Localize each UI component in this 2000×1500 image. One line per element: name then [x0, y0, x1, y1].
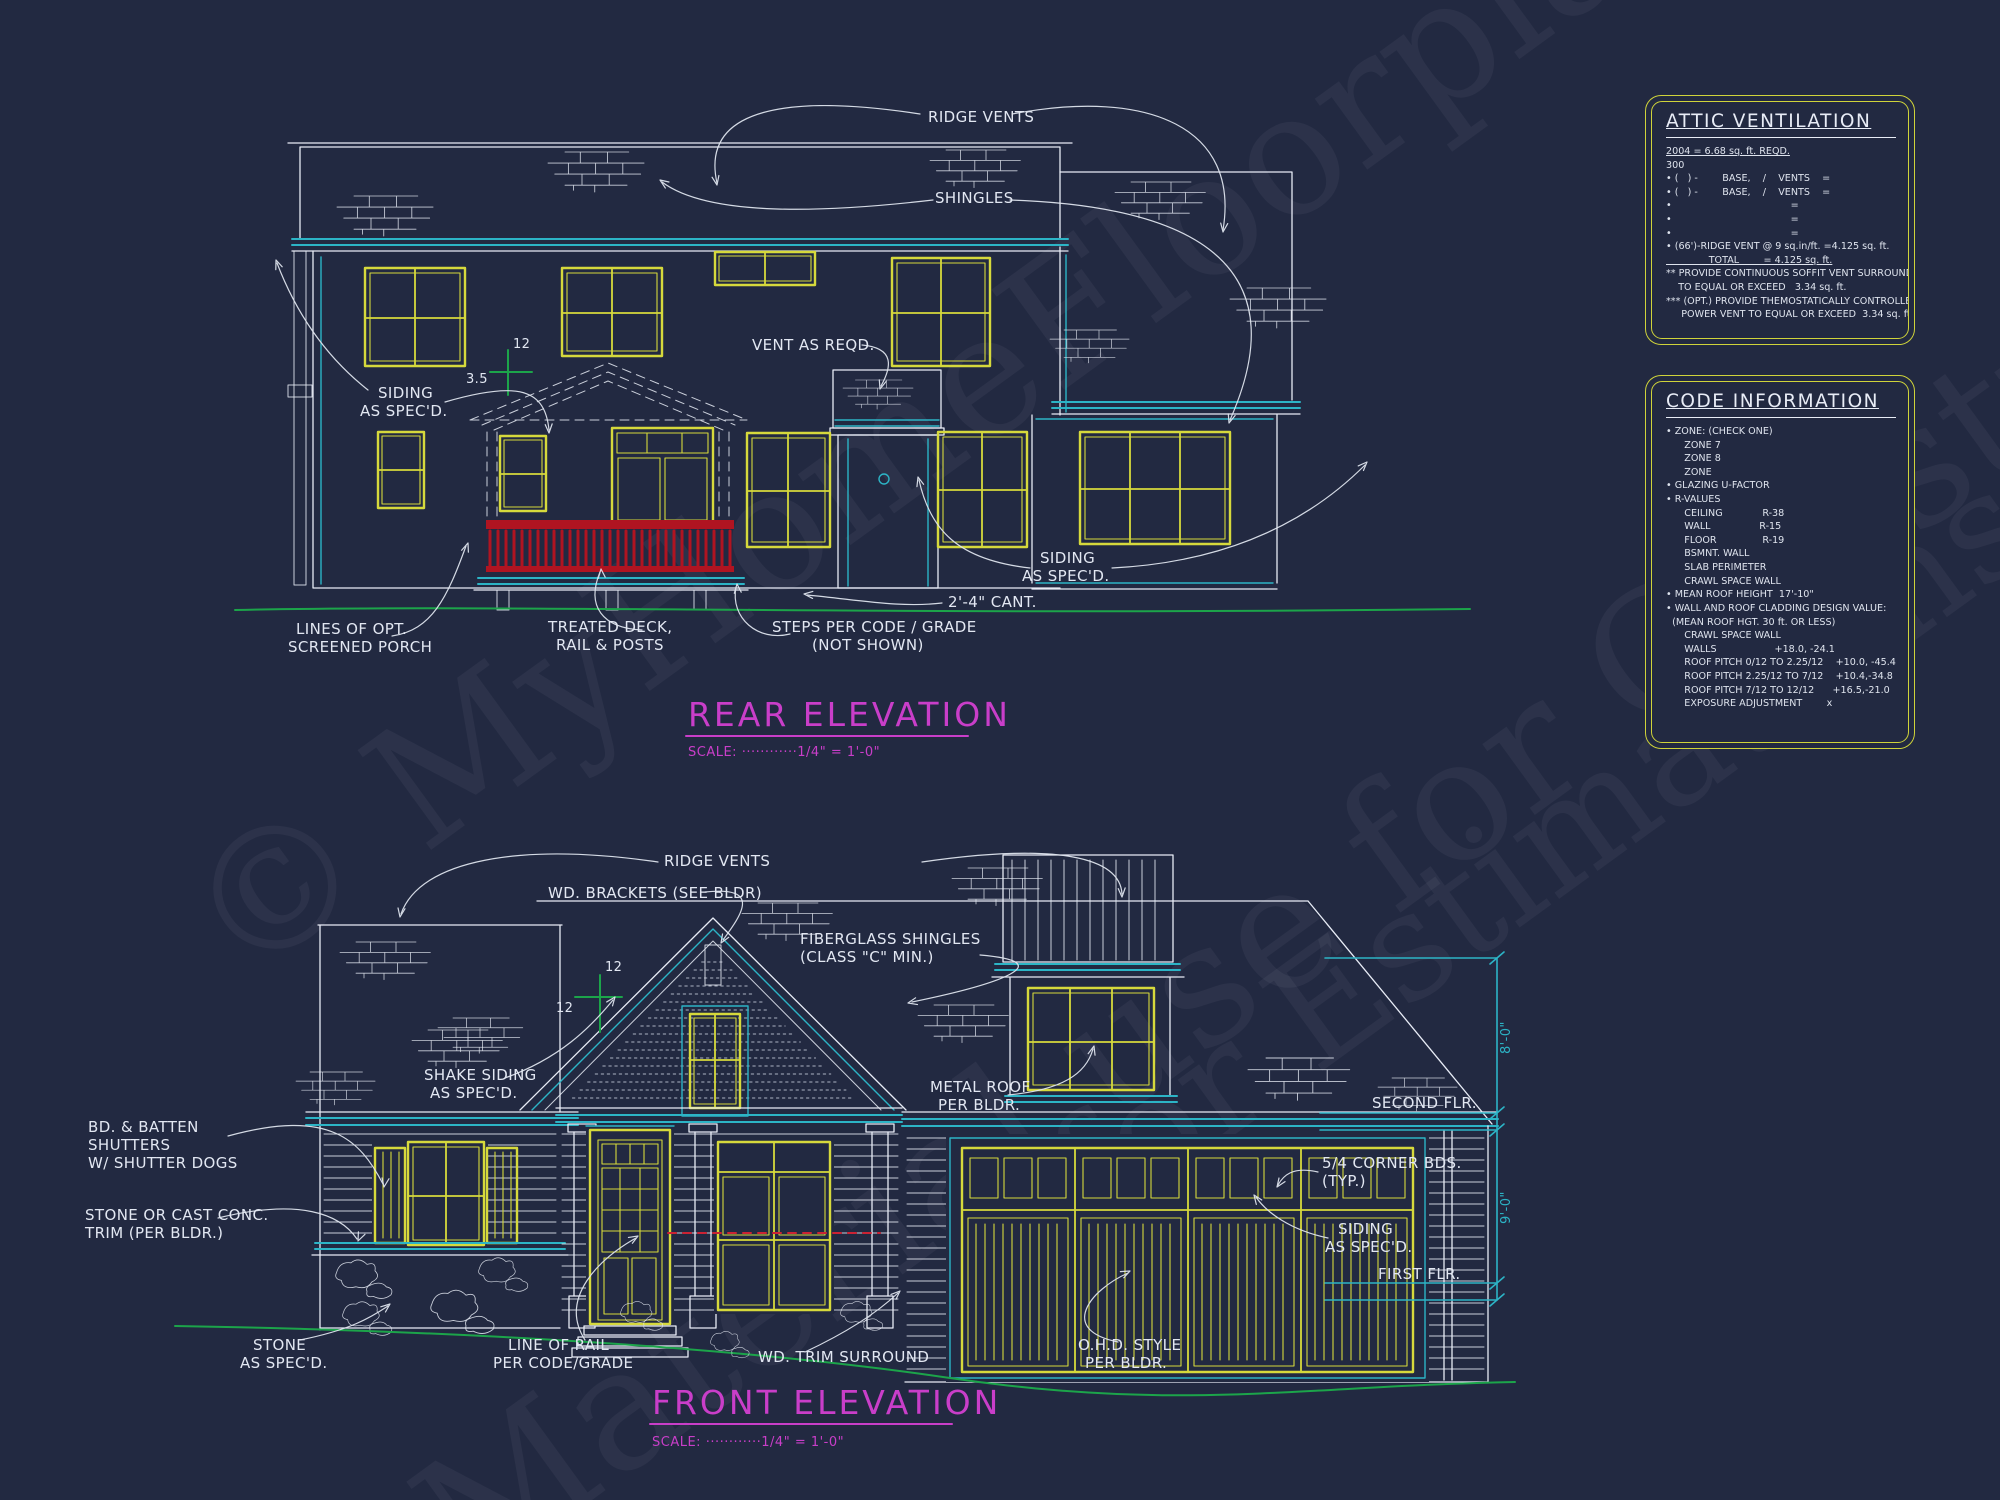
panel-line: • MEAN ROOF HEIGHT 17'-10": [1666, 588, 1896, 602]
code-information-panel: CODE INFORMATION • ZONE: (CHECK ONE) ZON…: [1645, 375, 1915, 749]
panel-line: • GLAZING U-FACTOR: [1666, 479, 1896, 493]
panel-line: 2004 = 6.68 sq. ft. REQD.: [1666, 145, 1896, 159]
rear-pitch-marker: 12 3.5: [466, 337, 532, 395]
label-siding: SIDING: [1040, 549, 1095, 567]
rear-wing-window: [1080, 432, 1230, 544]
panel-line: TO EQUAL OR EXCEED 3.34 sq. ft.: [1666, 281, 1896, 295]
panel-line: • ( ) - BASE, / VENTS =: [1666, 172, 1896, 186]
panel-line: • R-VALUES: [1666, 493, 1896, 507]
panel-line: EXPOSURE ADJUSTMENT x: [1666, 697, 1896, 711]
panel-line: • =: [1666, 199, 1896, 213]
deck-railing: [486, 520, 734, 572]
panel-line: ROOF PITCH 7/12 TO 12/12 +16.5,-21.0: [1666, 684, 1896, 698]
label-cantilever: 2'-4" CANT.: [948, 593, 1037, 611]
front-porch-window: [714, 1138, 834, 1314]
bay-window: [1005, 978, 1177, 1102]
gable-bracket: [705, 945, 721, 985]
panel-line: CRAWL SPACE WALL: [1666, 629, 1896, 643]
label-shutters: BD. & BATTEN: [88, 1118, 199, 1136]
label-steps: STEPS PER CODE / GRADE: [772, 618, 977, 636]
label-corner-boards: 5/4 CORNER BDS.: [1322, 1154, 1462, 1172]
panel-line: SLAB PERIMETER: [1666, 561, 1896, 575]
panel-line: ZONE 7: [1666, 439, 1896, 453]
panel-line: TOTAL = 4.125 sq. ft.: [1666, 254, 1896, 268]
label-wd-brackets: WD. BRACKETS (SEE BLDR): [548, 884, 762, 902]
label-ohd: O.H.D. STYLE: [1078, 1336, 1181, 1354]
rear-leader-lines: [273, 106, 1370, 636]
front-title: FRONT ELEVATION: [652, 1383, 1001, 1422]
front-scale: SCALE: ············1/4" = 1'-0": [652, 1435, 844, 1450]
shutter: [487, 1148, 517, 1243]
panel-line: (MEAN ROOF HGT. 30 ft. OR LESS): [1666, 616, 1896, 630]
label-siding: AS SPEC'D.: [1022, 567, 1110, 585]
label-fiberglass-shingles: (CLASS "C" MIN.): [800, 948, 934, 966]
rear-pitch-rise: 3.5: [466, 372, 488, 387]
label-stone: STONE: [253, 1336, 306, 1354]
label-rail-line: LINE OF RAIL: [508, 1336, 609, 1354]
rear-window: [892, 258, 990, 366]
rear-window: [365, 268, 465, 366]
label-treated-deck: TREATED DECK,: [547, 618, 672, 636]
rear-elevation-drawing: 12 3.5 RIDGE VENTS SHINGLE: [235, 106, 1470, 760]
label-siding: SIDING: [378, 384, 433, 402]
front-pitch-marker: 12 12: [556, 960, 622, 1032]
panel-line: • =: [1666, 227, 1896, 241]
label-ridge-vents: RIDGE VENTS: [664, 852, 770, 870]
panel-line: WALL R-15: [1666, 520, 1896, 534]
label-ridge-vents: RIDGE VENTS: [928, 108, 1034, 126]
porch-post: [689, 1124, 717, 1328]
dim-first-story: 9'-0": [1499, 1191, 1514, 1224]
panel-line: ZONE: [1666, 466, 1896, 480]
panel-line: • =: [1666, 213, 1896, 227]
panel-line: ** PROVIDE CONTINUOUS SOFFIT VENT SURROU…: [1666, 267, 1896, 281]
rear-transom-window: [715, 252, 815, 285]
label-shutters: W/ SHUTTER DOGS: [88, 1154, 238, 1172]
panel-line: POWER VENT TO EQUAL OR EXCEED 3.34 sq. f…: [1666, 308, 1896, 322]
front-elevation-drawing: 8'-0" 9'-0" 12 12: [84, 852, 1515, 1450]
front-pitch-rise: 12: [556, 1001, 573, 1016]
label-trim-surround: WD. TRIM SURROUND: [758, 1348, 929, 1366]
label-stone-trim: STONE OR CAST CONC.: [85, 1206, 268, 1224]
panel-line: WALLS +18.0, -24.1: [1666, 643, 1896, 657]
label-shingles: SHINGLES: [935, 189, 1014, 207]
front-pitch-run: 12: [605, 960, 622, 975]
panel-line: *** (OPT.) PROVIDE THEMOSTATICALLY CONTR…: [1666, 295, 1896, 309]
front-door: [586, 1126, 674, 1326]
label-rail-line: PER CODE/GRADE: [493, 1354, 633, 1372]
shake-siding-texture: [572, 962, 853, 1098]
rear-window: [562, 268, 662, 356]
attic-ventilation-panel: ATTIC VENTILATION 2004 = 6.68 sq. ft. RE…: [1645, 95, 1915, 345]
label-steps: (NOT SHOWN): [812, 636, 924, 654]
rear-grade-line: [235, 608, 1470, 611]
label-shutters: SHUTTERS: [88, 1136, 170, 1154]
panel-line: ZONE 8: [1666, 452, 1896, 466]
gable-window: [682, 1006, 748, 1116]
dim-second-story: 8'-0": [1499, 1021, 1514, 1054]
code-panel-title: CODE INFORMATION: [1666, 391, 1896, 418]
panel-line: 300: [1666, 159, 1896, 173]
panel-line: • WALL AND ROOF CLADDING DESIGN VALUE:: [1666, 602, 1896, 616]
label-stone: AS SPEC'D.: [240, 1354, 328, 1372]
label-vent: VENT AS REQD.: [752, 336, 875, 354]
rear-scale: SCALE: ············1/4" = 1'-0": [688, 745, 880, 760]
label-shake-siding: SHAKE SIDING: [424, 1066, 537, 1084]
panel-line: ROOF PITCH 0/12 TO 2.25/12 +10.0, -45.4: [1666, 656, 1896, 670]
label-first-flr: FIRST FLR.: [1378, 1265, 1461, 1283]
label-stone-trim: TRIM (PER BLDR.): [84, 1224, 223, 1242]
rear-door: [838, 435, 938, 588]
rear-pitch-run: 12: [513, 337, 530, 352]
label-siding: SIDING: [1338, 1220, 1393, 1238]
rear-title: REAR ELEVATION: [688, 695, 1011, 734]
label-shake-siding: AS SPEC'D.: [430, 1084, 518, 1102]
label-screened-porch: LINES OF OPT.: [296, 620, 407, 638]
panel-line: • ( ) - BASE, / VENTS =: [1666, 186, 1896, 200]
panel-line: CEILING R-38: [1666, 507, 1896, 521]
panel-line: BSMNT. WALL: [1666, 547, 1896, 561]
label-siding: AS SPEC'D.: [360, 402, 448, 420]
panel-line: FLOOR R-19: [1666, 534, 1896, 548]
panel-line: CRAWL SPACE WALL: [1666, 575, 1896, 589]
rear-window: [938, 432, 1027, 547]
rear-small-window: [378, 432, 424, 508]
attic-panel-title: ATTIC VENTILATION: [1666, 111, 1896, 138]
porch-post: [866, 1124, 894, 1328]
label-screened-porch: SCREENED PORCH: [288, 638, 432, 656]
blueprint-sheet: © MyHomeFloorplans.com Material use for …: [0, 0, 2000, 1500]
panel-line: • ZONE: (CHECK ONE): [1666, 425, 1896, 439]
label-siding: AS SPEC'D.: [1325, 1238, 1413, 1256]
porch-window: [500, 436, 546, 511]
label-fiberglass-shingles: FIBERGLASS SHINGLES: [800, 930, 981, 948]
porch-door: [612, 428, 713, 522]
label-treated-deck: RAIL & POSTS: [556, 636, 664, 654]
label-second-flr: SECOND FLR.: [1372, 1094, 1477, 1112]
panel-line: ROOF PITCH 2.25/12 TO 7/12 +10.4,-34.8: [1666, 670, 1896, 684]
label-metal-roof: PER BLDR.: [938, 1096, 1020, 1114]
label-ohd: PER BLDR.: [1085, 1354, 1167, 1372]
rear-window: [747, 433, 830, 547]
label-metal-roof: METAL ROOF: [930, 1078, 1030, 1096]
panel-line: • (66')-RIDGE VENT @ 9 sq.in/ft. =4.125 …: [1666, 240, 1896, 254]
board-batten-panel: [1003, 855, 1173, 962]
label-corner-boards: (TYP.): [1322, 1172, 1366, 1190]
